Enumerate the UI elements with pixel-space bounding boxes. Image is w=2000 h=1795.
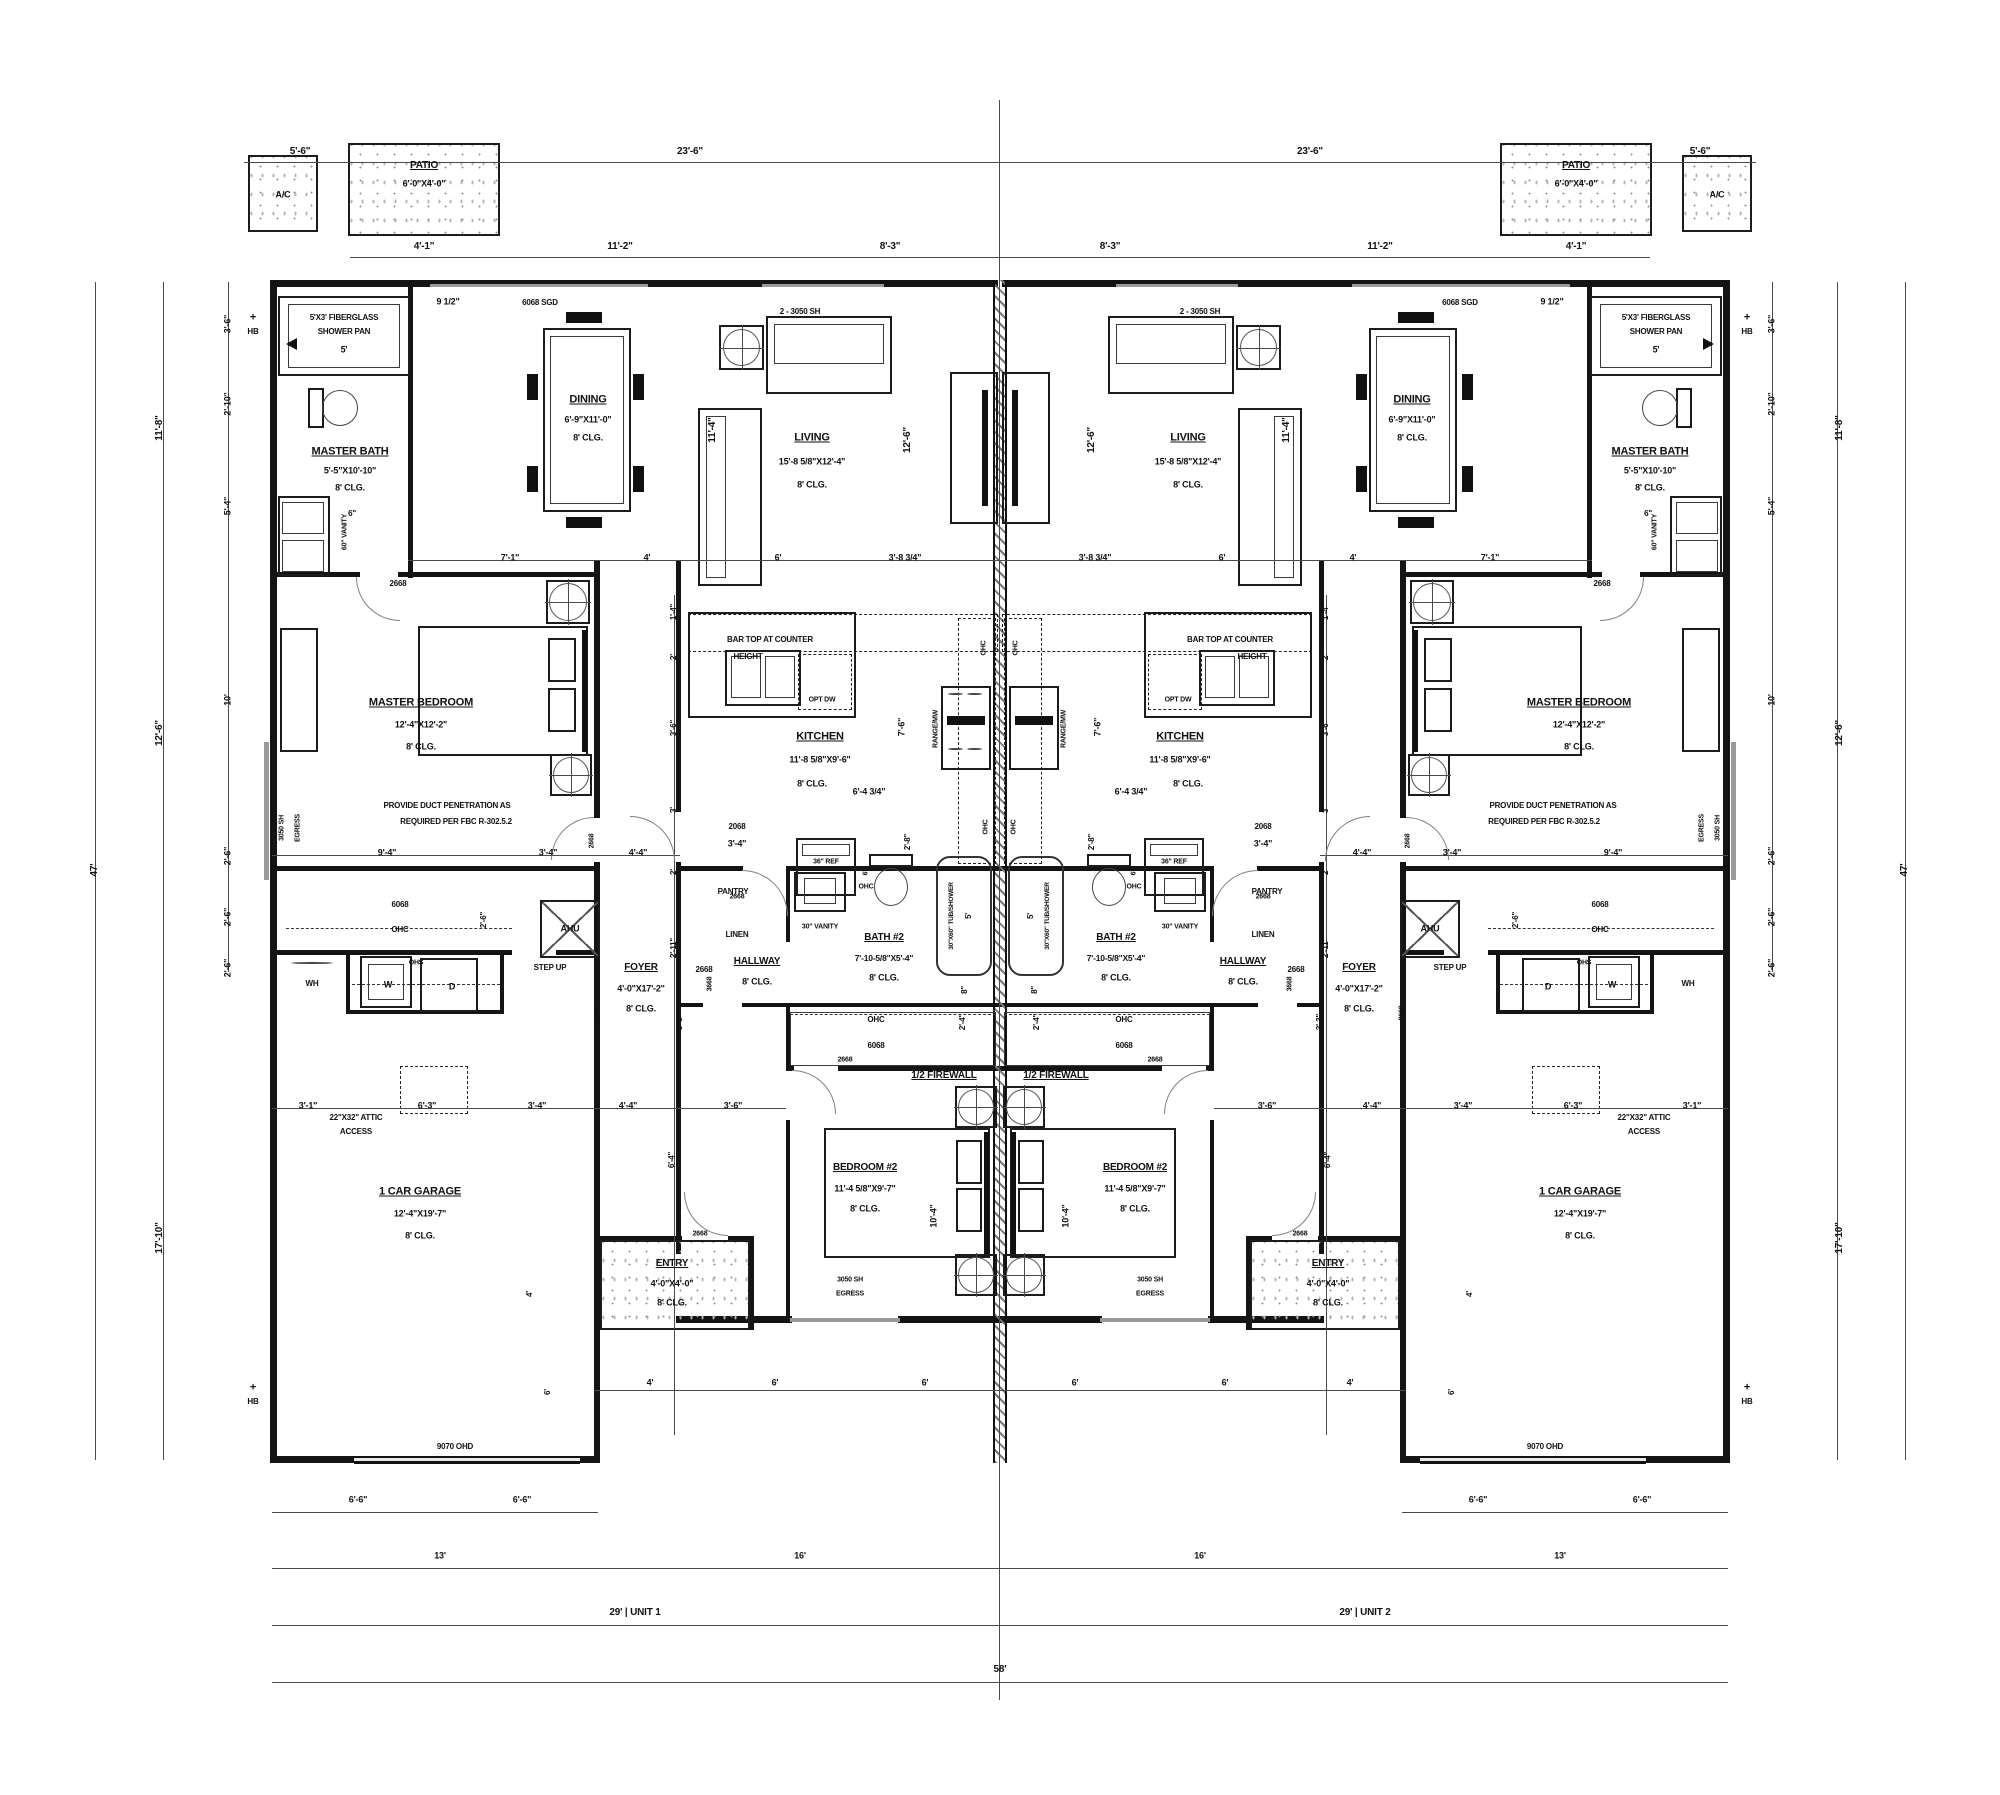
window-size: EGRESS <box>1136 1291 1164 1298</box>
dim: 10'-4" <box>1062 1204 1071 1227</box>
dim: 5'-4" <box>224 497 233 515</box>
wall-segment <box>1400 1456 1422 1463</box>
ohc-label: OHC <box>867 1016 884 1024</box>
room-size: 6'-9"X11'-0" <box>1389 416 1436 425</box>
dim-top: 8'-3" <box>880 242 901 252</box>
room-clg: 8' CLG. <box>742 978 772 987</box>
door-size: 6068 SGD <box>522 299 558 307</box>
fixture-outline <box>941 686 991 770</box>
dim: 2' <box>670 869 678 875</box>
room-clg: 8' CLG. <box>1564 743 1594 752</box>
dim: 17'-10" <box>155 1222 165 1253</box>
fixture-outline <box>1018 1140 1044 1184</box>
fan-cross <box>976 1085 977 1129</box>
hb-label: HB <box>247 1398 258 1406</box>
garage-door <box>354 1456 580 1464</box>
window-size: 2 - 3050 SH <box>780 308 821 316</box>
room-clg: 8' CLG. <box>850 1205 880 1214</box>
room-clg: 8' CLG. <box>1635 484 1665 493</box>
dim: 6'-4 3/4" <box>853 788 886 797</box>
door-size: 6068 SGD <box>1442 299 1478 307</box>
wall-segment <box>1257 866 1319 871</box>
dashed-line <box>352 984 500 985</box>
dim: 10'-4" <box>930 1204 939 1227</box>
wall-segment <box>270 280 277 1463</box>
dim: 11'-4" <box>1282 417 1292 442</box>
dim: 7'-6" <box>898 718 907 736</box>
room-title-bath2: BATH #2 <box>1096 933 1136 943</box>
toilet-bowl <box>1092 868 1126 906</box>
shower-note: 5'X3' FIBERGLASS <box>1622 314 1691 322</box>
door-size: 2668 <box>390 580 407 588</box>
solid-fill <box>633 374 644 400</box>
note-attic: 22"X32" ATTIC <box>1617 1114 1670 1122</box>
door-swing-arc <box>792 1070 836 1114</box>
window-glazing <box>762 284 884 287</box>
fan-cross <box>568 579 569 625</box>
dim: 6' <box>544 1389 552 1395</box>
room-title-patio: PATIO <box>1562 161 1590 171</box>
ac-pad-label: A/C <box>276 191 291 200</box>
dim: 6' <box>775 554 782 563</box>
dim: 3'-6" <box>670 720 678 736</box>
wall-segment <box>1644 1456 1730 1463</box>
ohc-label: OHC <box>1591 926 1608 934</box>
room-size: 15'-8 5/8"X12'-4" <box>779 458 845 467</box>
dim-line <box>1837 282 1838 1460</box>
dim: 6" <box>348 510 356 518</box>
fixture-detail <box>1164 878 1196 904</box>
dim: 17'-10" <box>1835 1222 1845 1253</box>
wall-segment <box>1319 862 1324 1254</box>
dim: 5'-4" <box>1768 497 1777 515</box>
room-size: 12'-4"X12'-2" <box>1553 721 1605 730</box>
hb-mark: + <box>250 1383 256 1394</box>
ohc-label: OHC <box>1013 641 1020 656</box>
wall-segment <box>786 1120 790 1320</box>
room-title-kitchen: KITCHEN <box>1156 732 1204 743</box>
room-title-bath2: BATH #2 <box>864 933 904 943</box>
fixture-detail <box>731 656 761 698</box>
dim: 2'-6" <box>1768 847 1777 865</box>
room-title-kitchen: KITCHEN <box>796 732 844 743</box>
note-duct: PROVIDE DUCT PENETRATION AS <box>1489 802 1616 810</box>
linen-label: LINEN <box>725 931 748 939</box>
dim: 6' <box>1448 1389 1456 1395</box>
room-title-master-bath: MASTER BATH <box>1611 447 1688 458</box>
fan-cross <box>742 325 743 370</box>
fixture-detail <box>1676 502 1718 534</box>
ohc-label: OHC <box>859 884 874 891</box>
range-burner <box>967 748 982 750</box>
door-size: 6068 <box>392 901 409 909</box>
door-swing-arc <box>1164 1070 1208 1114</box>
dim: 4'-4" <box>1353 849 1371 858</box>
dim: 6'-3" <box>1564 1102 1582 1111</box>
dim: 2'-6" <box>1512 912 1520 928</box>
solid-fill <box>566 517 602 528</box>
window-size: 3050 SH <box>837 1277 863 1284</box>
room-size: 6'-9"X11'-0" <box>565 416 612 425</box>
room-clg: 8' CLG. <box>1173 780 1203 789</box>
dim: 4' <box>1466 1291 1474 1297</box>
wall-segment <box>676 560 681 812</box>
room-title-garage: 1 CAR GARAGE <box>1539 1187 1621 1198</box>
fan-cross <box>1429 753 1430 797</box>
wall-segment <box>1404 866 1730 871</box>
ohc-label: OHC <box>983 820 990 835</box>
window-size: 2 - 3050 SH <box>1180 308 1221 316</box>
patio-size: 6'-0"X4'-0" <box>403 180 446 189</box>
fixture-outline <box>548 638 576 682</box>
vanity-label: 60" VANITY <box>1652 514 1659 550</box>
dim: 2'-6" <box>224 908 233 926</box>
door-size: 2668 <box>730 894 745 901</box>
door-size: 2068 <box>1255 823 1272 831</box>
tub-label: 30"X60" TUB/SHOWER <box>949 882 956 950</box>
dim-line <box>408 560 1592 561</box>
dim: 2' <box>1322 654 1330 660</box>
dryer-label: D <box>1545 983 1551 992</box>
unit1-label: 29' | UNIT 1 <box>609 1608 660 1618</box>
dim-line <box>1772 282 1773 972</box>
dim: 2'-8" <box>1088 834 1096 850</box>
room-title-hallway: HALLWAY <box>1220 957 1267 967</box>
room-size: 7'-10-5/8"X5'-4" <box>855 954 914 963</box>
hb-mark: + <box>1744 1383 1750 1394</box>
fan-cross <box>571 753 572 797</box>
dim-line <box>272 1568 1728 1569</box>
room-clg: 8' CLG. <box>573 434 603 443</box>
ahu-label: AHU <box>561 925 580 934</box>
window-size: 3050 SH <box>279 815 286 841</box>
wall-segment <box>1402 572 1602 577</box>
dim: 4'-4" <box>629 849 647 858</box>
note-attic: 22"X32" ATTIC <box>329 1114 382 1122</box>
dim: 13' <box>434 1552 446 1561</box>
room-title-master-bedroom: MASTER BEDROOM <box>369 698 473 709</box>
note-bartop: HEIGHT <box>733 653 762 661</box>
dim: 3'-4" <box>528 1102 546 1111</box>
dim: 5' <box>965 913 973 919</box>
dim: 12'-6" <box>1087 427 1097 453</box>
solid-fill <box>1398 312 1434 323</box>
window-glazing <box>790 1318 900 1322</box>
dim: 6'-6" <box>349 1496 367 1505</box>
dim: 6" <box>863 869 870 876</box>
solid-fill <box>1012 390 1018 506</box>
fan-cross <box>976 1253 977 1297</box>
dim: 2'-6" <box>224 959 233 977</box>
dim: 1'-4" <box>1322 604 1330 620</box>
door-swing-arc <box>742 870 788 916</box>
wall-segment <box>1400 560 1406 818</box>
vanity-label: 30" VANITY <box>1162 924 1198 931</box>
fixture-detail <box>282 540 324 572</box>
wall-segment <box>681 866 743 871</box>
room-size: 15'-8 5/8"X12'-4" <box>1155 458 1221 467</box>
solid-fill <box>1462 374 1473 400</box>
dim-top: 4'-1" <box>414 242 435 252</box>
dim: 9'-4" <box>378 849 396 858</box>
door-size: 3668 <box>1287 977 1294 992</box>
room-clg: 8' CLG. <box>405 1232 435 1241</box>
dim: 2'-8" <box>904 834 912 850</box>
washer-label: W <box>1608 981 1616 990</box>
dim-overall-width: 58' <box>994 1665 1007 1675</box>
dim: 2'-4" <box>1033 1014 1041 1030</box>
room-clg: 8' CLG. <box>626 1005 656 1014</box>
fan-cross <box>1024 1085 1025 1129</box>
dim: 3'-4" <box>728 840 746 849</box>
dim: 6'-4" <box>668 1152 676 1168</box>
room-size: 4'-0"X4'-0" <box>1307 1280 1350 1289</box>
room-clg: 8' CLG. <box>869 974 899 983</box>
room-clg: 8' CLG. <box>1228 978 1258 987</box>
dim: 2'-6" <box>224 847 233 865</box>
window-size: EGRESS <box>1699 814 1706 842</box>
room-title-entry: ENTRY <box>656 1259 689 1269</box>
tub-label: 30"X60" TUB/SHOWER <box>1045 882 1052 950</box>
fixture-detail <box>804 878 836 904</box>
wall-segment <box>1000 1003 1258 1007</box>
note-bartop: BAR TOP AT COUNTER <box>727 636 813 644</box>
note-step-up: STEP UP <box>534 964 567 972</box>
solid-fill <box>1413 630 1418 752</box>
toilet-bowl <box>874 868 908 906</box>
dim: 9'-4" <box>1604 849 1622 858</box>
door-size: 2668 <box>589 834 596 849</box>
dryer-label: D <box>449 983 455 992</box>
room-title-dining: DINING <box>569 395 606 406</box>
ohc-label: OHC <box>981 641 988 656</box>
ohc-label: OHC <box>1127 884 1142 891</box>
toilet-bowl <box>1642 390 1678 426</box>
dim-line <box>1320 855 1728 856</box>
dim: 12'-6" <box>1835 720 1845 746</box>
door-size: 3668 <box>707 977 714 992</box>
note-duct: REQUIRED PER FBC R-302.5.2 <box>400 818 512 826</box>
fixture-detail <box>1150 844 1198 856</box>
dim: 3'-6" <box>224 315 233 333</box>
dim: 2'-10" <box>1768 392 1777 415</box>
toilet-bowl <box>322 390 358 426</box>
room-size: 5'-5"X10'-10" <box>1624 467 1676 476</box>
dim: 2'-4" <box>959 1014 967 1030</box>
fixture-detail <box>1205 656 1235 698</box>
dim: 3' <box>1322 807 1330 813</box>
room-title-foyer: FOYER <box>624 963 657 973</box>
room-clg: 8' CLG. <box>1173 481 1203 490</box>
dim: 4' <box>526 1291 534 1297</box>
garage-door <box>1420 1456 1646 1464</box>
dashed-line <box>1500 984 1648 985</box>
ohs-label: OHS <box>409 960 424 967</box>
room-size: 12'-4"X19'-7" <box>394 1210 446 1219</box>
solid-fill <box>566 312 602 323</box>
fixture-detail <box>282 502 324 534</box>
dim-line <box>350 257 1650 258</box>
hb-mark: + <box>250 313 256 324</box>
dim-line <box>272 1512 598 1513</box>
dim: 3'-6" <box>1768 315 1777 333</box>
floor-plan-canvas: 5'-6"5'-6"23'-6"23'-6"4'-1"4'-1"11'-2"11… <box>0 0 2000 1795</box>
vanity-label: 30" VANITY <box>802 924 838 931</box>
water-heater-label: WH <box>1682 980 1695 988</box>
dim-line <box>272 1625 1728 1626</box>
window-glazing <box>430 284 648 287</box>
room-title-dining: DINING <box>1393 395 1430 406</box>
firewall-label: 1/2 FIREWALL <box>1023 1071 1088 1081</box>
dim: 1'-4" <box>670 604 678 620</box>
dim: 3'-4" <box>1443 849 1461 858</box>
dim: 6' <box>1222 1379 1229 1388</box>
vanity-label: 60" VANITY <box>342 514 349 550</box>
dim-line <box>594 1390 1406 1391</box>
dim: 4' <box>1347 1379 1354 1388</box>
note-step-up: STEP UP <box>1434 964 1467 972</box>
dim-top: 5'-6" <box>290 147 311 157</box>
dim: 3'-1" <box>1683 1102 1701 1111</box>
window-size: 3050 SH <box>1137 1277 1163 1284</box>
ohc-label: OHC <box>1115 1016 1132 1024</box>
wall-segment <box>681 1003 703 1007</box>
room-title-patio: PATIO <box>410 161 438 171</box>
wall-segment <box>578 1456 600 1463</box>
fixture-detail <box>765 656 795 698</box>
dim: 3'-8 3/4" <box>889 554 922 563</box>
dim: 6'-6" <box>1633 1496 1651 1505</box>
room-title-bedroom2: BEDROOM #2 <box>1103 1163 1167 1173</box>
solid-fill <box>982 390 988 506</box>
room-size: 4'-0"X17'-2" <box>617 985 664 994</box>
dim: 6'-4" <box>1324 1152 1332 1168</box>
hb-label: HB <box>1741 328 1752 336</box>
dim: 4' <box>644 554 651 563</box>
wall-segment <box>1210 1003 1214 1066</box>
room-clg: 8' CLG. <box>797 481 827 490</box>
dim: 6'-6" <box>513 1496 531 1505</box>
fixture-detail <box>1239 656 1269 698</box>
fan-cross <box>1024 1253 1025 1297</box>
door-size: 2668 <box>1256 894 1271 901</box>
shower-note: 5'X3' FIBERGLASS <box>310 314 379 322</box>
dim: 12'-6" <box>903 427 913 453</box>
window-glazing <box>1116 284 1238 287</box>
dim: 10' <box>1768 694 1777 706</box>
room-title-master-bath: MASTER BATH <box>311 447 388 458</box>
unit2-label: 29' | UNIT 2 <box>1339 1608 1390 1618</box>
dim-line <box>244 162 1756 163</box>
door-size: 6068 <box>868 1042 885 1050</box>
dim: 3'-4" <box>1254 840 1272 849</box>
shower-note: SHOWER PAN <box>318 328 371 336</box>
door-size: 2668 <box>1399 1006 1406 1021</box>
dim: 3' <box>670 807 678 813</box>
room-clg: 8' CLG. <box>1565 1232 1595 1241</box>
solid-fill <box>582 630 587 752</box>
solid-fill <box>1011 1132 1016 1254</box>
wall-segment <box>742 1003 1000 1007</box>
concrete-pad <box>1500 143 1652 236</box>
dim: 3'-1" <box>299 1102 317 1111</box>
solid-fill <box>1462 466 1473 492</box>
fixture-outline <box>956 1140 982 1184</box>
door-size: 2668 <box>696 966 713 974</box>
dim-top: 5'-6" <box>1690 147 1711 157</box>
room-clg: 8' CLG. <box>335 484 365 493</box>
ohc-label: OHC <box>1011 820 1018 835</box>
room-size: 11'-4 5/8"X9'-7" <box>834 1185 895 1194</box>
door-size: 6068 <box>1116 1042 1133 1050</box>
fixture-outline <box>1002 372 1050 524</box>
wall-segment <box>1319 560 1324 812</box>
linen-label: LINEN <box>1251 931 1274 939</box>
tub-shower <box>1008 856 1064 976</box>
dim: 6' <box>1219 554 1226 563</box>
room-clg: 8' CLG. <box>406 743 436 752</box>
dim: 10' <box>224 694 233 706</box>
dim: 6" <box>1644 510 1652 518</box>
dim: 9 1/2" <box>1540 298 1563 307</box>
wall-segment <box>1488 950 1730 955</box>
room-clg: 8' CLG. <box>1120 1205 1150 1214</box>
window-glazing <box>264 742 269 880</box>
dim-top: 4'-1" <box>1566 242 1587 252</box>
dim: 16' <box>1194 1552 1206 1561</box>
room-clg: 8' CLG. <box>1101 974 1131 983</box>
dim-top: 23'-6" <box>1297 147 1323 157</box>
dim: 2'-11" <box>670 938 678 958</box>
room-title-garage: 1 CAR GARAGE <box>379 1187 461 1198</box>
fixture-outline <box>1018 1188 1044 1232</box>
firewall-label: 1/2 FIREWALL <box>911 1071 976 1081</box>
dim: 6'-6" <box>1469 1496 1487 1505</box>
wall-segment <box>270 950 512 955</box>
room-size: 12'-4"X19'-7" <box>1554 1210 1606 1219</box>
ahu-label: AHU <box>1421 925 1440 934</box>
room-size: 11'-8 5/8"X9'-6" <box>1149 756 1210 765</box>
dim: 6'-3" <box>418 1102 436 1111</box>
dim-overall-depth: 47' <box>90 864 100 877</box>
room-clg: 8' CLG. <box>1344 1005 1374 1014</box>
room-title-living: LIVING <box>794 433 829 444</box>
dim: 3'-6" <box>724 1102 742 1111</box>
fixture-detail <box>1116 324 1226 364</box>
room-size: 4'-0"X17'-2" <box>1335 985 1382 994</box>
dim: 11'-8" <box>155 415 165 440</box>
garage-door-size: 9070 OHD <box>1527 1443 1563 1451</box>
dim: 6' <box>772 1379 779 1388</box>
dim: 4'-4" <box>619 1102 637 1111</box>
solid-fill <box>1015 716 1053 725</box>
optdw-label: OPT DW <box>1165 697 1192 704</box>
room-clg: 8' CLG. <box>657 1299 687 1308</box>
garage-door-size: 9070 OHD <box>437 1443 473 1451</box>
room-title-foyer: FOYER <box>1342 963 1375 973</box>
door-swing-arc <box>1272 1192 1316 1236</box>
fixture-outline <box>1009 686 1059 770</box>
wall-segment <box>676 862 681 1254</box>
window-size: 3050 SH <box>1715 815 1722 841</box>
room-size: 7'-10-5/8"X5'-4" <box>1087 954 1146 963</box>
fixture-detail <box>802 844 850 856</box>
hb-mark: + <box>1744 313 1750 324</box>
dim-line <box>163 282 164 1460</box>
dim: 9 1/2" <box>436 298 459 307</box>
water-heater-circle <box>291 962 333 964</box>
fixture-detail <box>774 324 884 364</box>
